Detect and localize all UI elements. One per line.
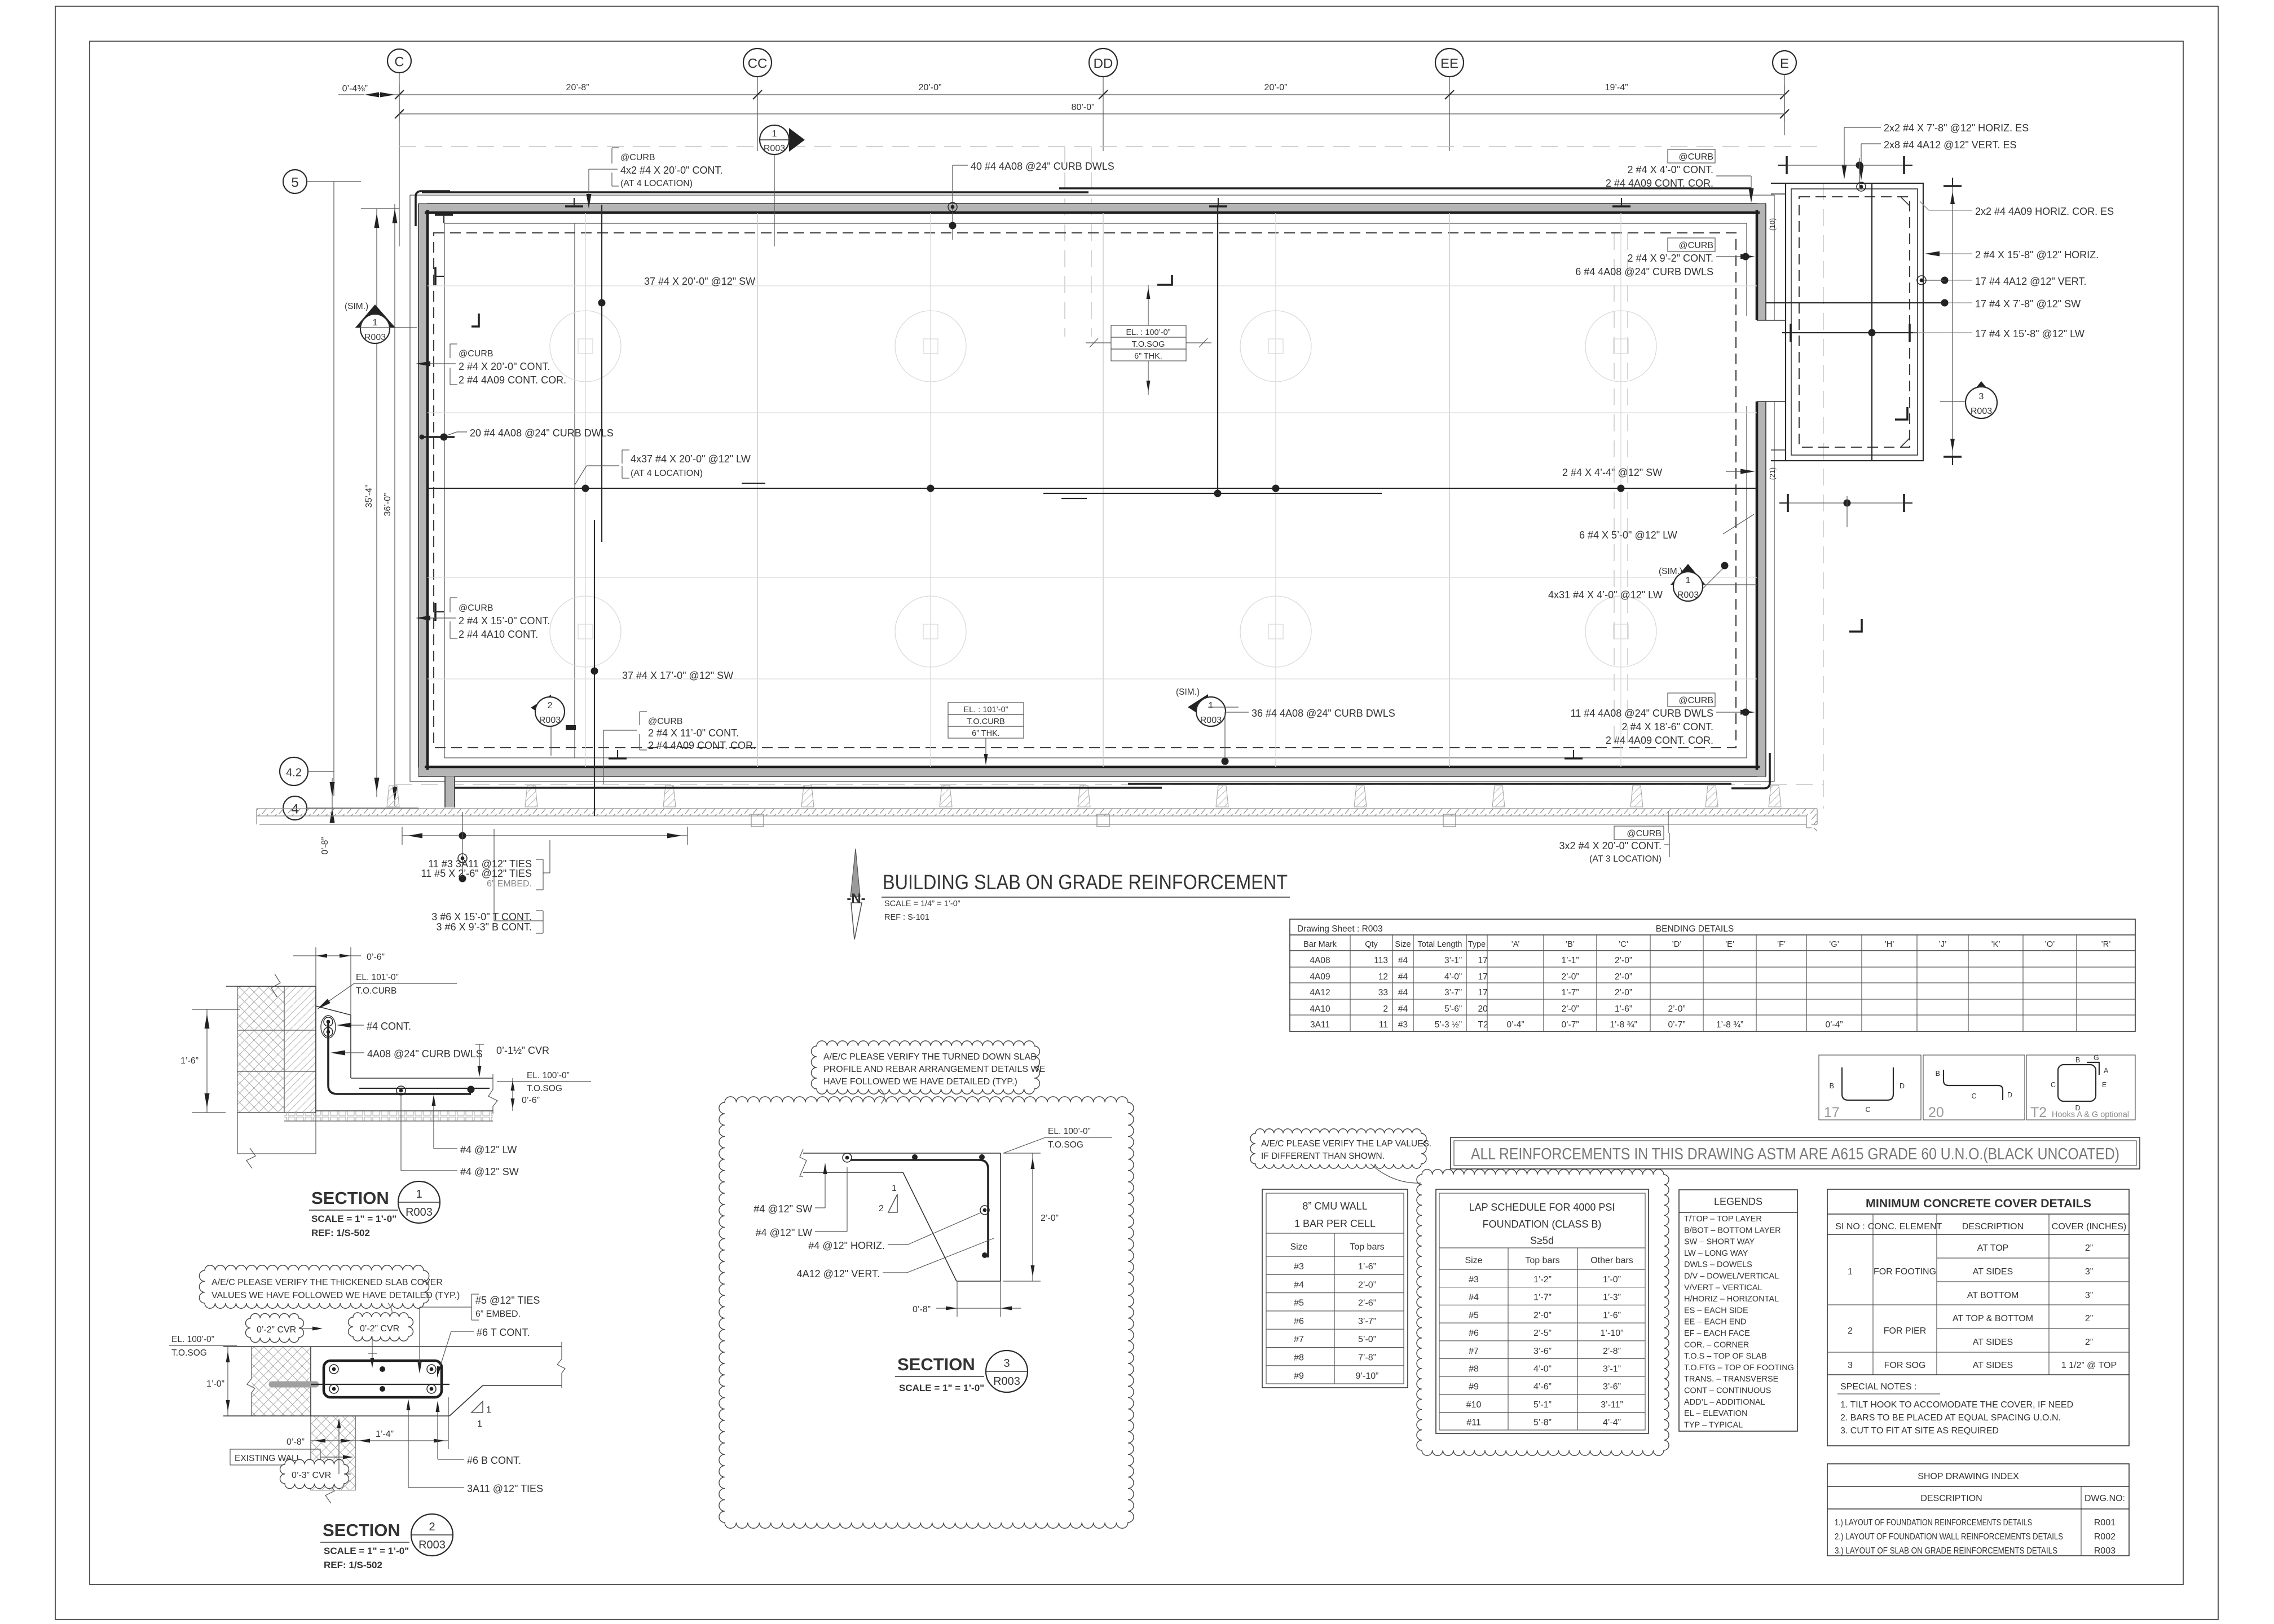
svg-text:#4: #4: [1469, 1293, 1479, 1303]
svg-text:SECTION: SECTION: [323, 1520, 400, 1540]
svg-text:0’-4”: 0’-4”: [1825, 1020, 1843, 1030]
svg-text:4x31 #4 X 4’-0" @12" LW: 4x31 #4 X 4’-0" @12" LW: [1548, 589, 1663, 601]
svg-text:#4 CONT.: #4 CONT.: [367, 1021, 411, 1032]
svg-text:1’-6”: 1’-6”: [1603, 1310, 1621, 1320]
svg-text:4’-4”: 4’-4”: [1603, 1418, 1621, 1428]
svg-text:3.) LAYOUT OF SLAB ON GRADE RE: 3.) LAYOUT OF SLAB ON GRADE REINFORCEMEN…: [1835, 1546, 2057, 1556]
svg-text:#10: #10: [1466, 1400, 1482, 1410]
svg-text:T2: T2: [1478, 1020, 1488, 1030]
svg-text:80’-0”: 80’-0”: [1072, 103, 1095, 112]
svg-text:LW – LONG WAY: LW – LONG WAY: [1684, 1249, 1748, 1258]
svg-text:6” EMBED.: 6” EMBED.: [475, 1309, 521, 1319]
svg-text:C: C: [394, 54, 404, 69]
svg-text:#7: #7: [1469, 1347, 1479, 1356]
svg-text:’D’: ’D’: [1672, 940, 1682, 949]
svg-text:0’-8”: 0’-8”: [320, 837, 330, 854]
svg-text:2’-6”: 2’-6”: [1358, 1299, 1376, 1308]
svg-text:1: 1: [1686, 576, 1691, 585]
svg-text:T.O.FTG – TOP OF FOOTING: T.O.FTG – TOP OF FOOTING: [1684, 1363, 1794, 1373]
svg-text:2: 2: [1848, 1326, 1853, 1336]
svg-text:0’-4⅜”: 0’-4⅜”: [342, 84, 368, 94]
svg-text:2 #4 4A09 CONT. COR.: 2 #4 4A09 CONT. COR.: [459, 374, 566, 386]
svg-text:FOR PIER: FOR PIER: [1884, 1326, 1927, 1336]
svg-text:3’-1”: 3’-1”: [1444, 956, 1462, 965]
svg-text:2’-5”: 2’-5”: [1533, 1329, 1552, 1338]
svg-text:’F’: ’F’: [1777, 940, 1786, 949]
svg-text:#4: #4: [1398, 972, 1408, 982]
svg-text:VALUES WE HAVE FOLLOWED WE HAV: VALUES WE HAVE FOLLOWED WE HAVE DETAILED…: [211, 1291, 460, 1300]
svg-text:2’-0”: 2’-0”: [1615, 956, 1632, 965]
svg-text:6” THK.: 6” THK.: [972, 729, 1000, 738]
svg-text:1: 1: [477, 1419, 482, 1429]
svg-text:2: 2: [429, 1521, 435, 1533]
svg-text:LAP SCHEDULE FOR 4000 PSI: LAP SCHEDULE FOR 4000 PSI: [1469, 1202, 1615, 1213]
svg-text:6” THK.: 6” THK.: [1134, 352, 1162, 361]
svg-text:6 #4 4A08 @24" CURB DWLS: 6 #4 4A08 @24" CURB DWLS: [1575, 266, 1713, 277]
svg-text:3: 3: [1848, 1361, 1853, 1370]
svg-text:EL. 101’-0”: EL. 101’-0”: [356, 973, 399, 982]
svg-text:20 #4 4A08 @24" CURB DWLS: 20 #4 4A08 @24" CURB DWLS: [470, 427, 614, 439]
svg-text:IF DIFFERENT THAN SHOWN.: IF DIFFERENT THAN SHOWN.: [1261, 1151, 1385, 1161]
svg-text:SCALE = 1" = 1’-0": SCALE = 1" = 1’-0": [324, 1546, 409, 1556]
svg-text:4A12 @12" VERT.: 4A12 @12" VERT.: [797, 1268, 880, 1279]
svg-text:2x2 #4 4A09 HORIZ. COR. ES: 2x2 #4 4A09 HORIZ. COR. ES: [1975, 206, 2114, 217]
svg-text:12: 12: [1378, 972, 1388, 982]
svg-text:’G’: ’G’: [1829, 940, 1839, 949]
svg-text:2 #4 X 4’-0" CONT.: 2 #4 X 4’-0" CONT.: [1628, 164, 1713, 175]
svg-text:@CURB: @CURB: [1678, 696, 1713, 705]
svg-text:ALL REINFORCEMENTS IN THIS DRA: ALL REINFORCEMENTS IN THIS DRAWING ASTM …: [1471, 1145, 2119, 1163]
svg-text:SI NO :: SI NO :: [1835, 1222, 1865, 1232]
svg-text:REF: 1/S-502: REF: 1/S-502: [324, 1560, 382, 1570]
svg-text:1.) LAYOUT OF FOUNDATION REINF: 1.) LAYOUT OF FOUNDATION REINFORCEMENTS …: [1835, 1518, 2032, 1528]
svg-text:EL – ELEVATION: EL – ELEVATION: [1684, 1409, 1748, 1418]
svg-text:0’-1½” CVR: 0’-1½” CVR: [496, 1045, 549, 1056]
svg-text:R002: R002: [2094, 1532, 2116, 1542]
svg-text:EE: EE: [1440, 56, 1458, 71]
svg-text:’B’: ’B’: [1566, 940, 1575, 949]
svg-text:1: 1: [772, 129, 777, 139]
svg-text:DESCRIPTION: DESCRIPTION: [1962, 1222, 2024, 1232]
svg-text:COR. – CORNER: COR. – CORNER: [1684, 1340, 1749, 1349]
svg-text:SECTION: SECTION: [311, 1188, 389, 1208]
svg-text:R003: R003: [2094, 1546, 2116, 1556]
svg-text:(AT 4 LOCATION): (AT 4 LOCATION): [620, 179, 693, 188]
svg-text:SCALE = 1" = 1’-0": SCALE = 1" = 1’-0": [899, 1383, 984, 1393]
svg-text:S≥5d: S≥5d: [1530, 1235, 1554, 1246]
svg-text:3: 3: [1979, 392, 1984, 401]
svg-text:DESCRIPTION: DESCRIPTION: [1920, 1494, 1982, 1503]
svg-text:#6: #6: [1294, 1317, 1304, 1326]
svg-text:A/E/C PLEASE VERIFY THE THICKE: A/E/C PLEASE VERIFY THE THICKENED SLAB C…: [211, 1278, 443, 1287]
svg-text:1’-7”: 1’-7”: [1561, 988, 1579, 998]
svg-text:1’-1”: 1’-1”: [1561, 956, 1579, 965]
svg-text:R003: R003: [364, 333, 386, 342]
svg-text:3’-6”: 3’-6”: [1603, 1382, 1621, 1392]
svg-text:T.O.SOG: T.O.SOG: [1132, 340, 1165, 349]
svg-text:2.) LAYOUT OF FOUNDATION WALL: 2.) LAYOUT OF FOUNDATION WALL REINFORCEM…: [1835, 1532, 2063, 1542]
svg-text:36’-0”: 36’-0”: [383, 493, 393, 517]
svg-text:DD: DD: [1094, 56, 1113, 71]
svg-text:Size: Size: [1290, 1242, 1307, 1252]
svg-text:17 #4 X 7’-8" @12" SW: 17 #4 X 7’-8" @12" SW: [1975, 298, 2081, 310]
svg-text:0’-6”: 0’-6”: [522, 1096, 540, 1105]
svg-text:EL. 100’-0”: EL. 100’-0”: [171, 1335, 214, 1344]
svg-text:SCALE = 1/4” = 1’-0”: SCALE = 1/4” = 1’-0”: [884, 899, 960, 908]
svg-text:1’-8 ¾”: 1’-8 ¾”: [1716, 1020, 1743, 1030]
svg-text:20’-0”: 20’-0”: [919, 83, 942, 92]
svg-text:B: B: [1830, 1082, 1834, 1090]
svg-text:2’-0”: 2’-0”: [1041, 1213, 1059, 1223]
svg-text:2. BARS TO BE PLACED AT EQUAL: 2. BARS TO BE PLACED AT EQUAL SPACING U.…: [1840, 1413, 2061, 1423]
svg-text:#4: #4: [1398, 988, 1408, 998]
svg-text:Type: Type: [1468, 940, 1486, 949]
svg-text:REF : S-101: REF : S-101: [884, 913, 929, 922]
svg-text:@CURB: @CURB: [1678, 152, 1713, 162]
svg-text:#4 @12" LW: #4 @12" LW: [756, 1227, 812, 1238]
svg-text:3’-7”: 3’-7”: [1358, 1317, 1376, 1326]
svg-text:19’-4”: 19’-4”: [1605, 83, 1628, 92]
svg-text:2’-0”: 2’-0”: [1615, 988, 1632, 998]
svg-text:2 #4 X 4’-4" @12" SW: 2 #4 X 4’-4" @12" SW: [1562, 467, 1662, 478]
svg-text:5: 5: [291, 175, 298, 190]
svg-text:2 #4 4A09 CONT. COR.: 2 #4 4A09 CONT. COR.: [1606, 178, 1713, 189]
svg-text:2’-0”: 2’-0”: [1615, 972, 1632, 982]
svg-text:T.O.SOG: T.O.SOG: [171, 1348, 207, 1358]
svg-text:5’-8”: 5’-8”: [1533, 1418, 1552, 1428]
svg-text:BUILDING SLAB ON GRADE REINFOR: BUILDING SLAB ON GRADE REINFORCEMENT: [883, 871, 1288, 894]
svg-text:Size: Size: [1465, 1256, 1482, 1265]
svg-text:2”: 2”: [2085, 1338, 2093, 1347]
svg-text:T.O.SOG: T.O.SOG: [1048, 1140, 1083, 1150]
svg-text:BENDING DETAILS: BENDING DETAILS: [1656, 924, 1734, 934]
svg-text:R003: R003: [764, 144, 785, 153]
svg-text:2”: 2”: [2085, 1243, 2093, 1253]
svg-text:’E’: ’E’: [1725, 940, 1734, 949]
svg-text:17: 17: [1824, 1105, 1840, 1120]
svg-text:4’-0”: 4’-0”: [1444, 972, 1462, 982]
svg-text:8” CMU WALL: 8” CMU WALL: [1302, 1201, 1367, 1212]
svg-text:4.2: 4.2: [286, 766, 302, 779]
svg-text:R003: R003: [418, 1539, 446, 1551]
svg-text:4A08: 4A08: [1310, 956, 1330, 965]
svg-text:#3: #3: [1469, 1275, 1479, 1285]
svg-text:V/VERT – VERTICAL: V/VERT – VERTICAL: [1684, 1283, 1762, 1292]
svg-text:3A11: 3A11: [1310, 1020, 1330, 1030]
svg-text:5’-3 ½”: 5’-3 ½”: [1435, 1020, 1462, 1030]
svg-text:1 BAR PER CELL: 1 BAR PER CELL: [1294, 1218, 1376, 1229]
svg-text:D/V – DOWEL/VERTICAL: D/V – DOWEL/VERTICAL: [1684, 1272, 1779, 1281]
svg-text:9’-10”: 9’-10”: [1356, 1371, 1379, 1381]
svg-text:EE – EACH END: EE – EACH END: [1684, 1318, 1746, 1327]
svg-text:Total Length: Total Length: [1417, 940, 1462, 949]
svg-text:A: A: [2104, 1067, 2109, 1075]
svg-text:4A12: 4A12: [1310, 988, 1330, 998]
svg-text:C: C: [2051, 1081, 2056, 1089]
svg-text:0’-6”: 0’-6”: [367, 952, 385, 962]
svg-text:#5 @12" TIES: #5 @12" TIES: [475, 1295, 540, 1306]
svg-text:1: 1: [373, 318, 378, 328]
svg-text:20’-8”: 20’-8”: [566, 83, 589, 92]
svg-text:#9: #9: [1469, 1382, 1479, 1392]
svg-text:2 #4 X 20’-0" CONT.: 2 #4 X 20’-0" CONT.: [459, 361, 550, 372]
svg-text:Qty: Qty: [1365, 940, 1378, 949]
svg-text:H/HORIZ – HORIZONTAL: H/HORIZ – HORIZONTAL: [1684, 1295, 1779, 1304]
svg-text:1’-0”: 1’-0”: [206, 1379, 224, 1389]
svg-text:T2: T2: [2030, 1105, 2047, 1120]
svg-text:#4 @12" SW: #4 @12" SW: [753, 1203, 812, 1215]
svg-text:T.O.SOG: T.O.SOG: [527, 1084, 562, 1093]
svg-text:CONC. ELEMENT: CONC. ELEMENT: [1868, 1222, 1942, 1232]
svg-text:0’-2” CVR: 0’-2” CVR: [360, 1324, 399, 1334]
svg-text:R003: R003: [1971, 407, 1992, 416]
svg-text:33: 33: [1378, 988, 1388, 998]
svg-text:Top bars: Top bars: [1525, 1256, 1559, 1265]
svg-text:B/BOT – BOTTOM LAYER: B/BOT – BOTTOM LAYER: [1684, 1226, 1781, 1235]
svg-text:35’-4”: 35’-4”: [364, 485, 374, 508]
svg-text:#9: #9: [1294, 1371, 1304, 1381]
svg-text:36 #4 4A08 @24" CURB DWLS: 36 #4 4A08 @24" CURB DWLS: [1251, 708, 1395, 719]
svg-text:0’-4”: 0’-4”: [1506, 1020, 1524, 1030]
svg-text:#6 B CONT.: #6 B CONT.: [467, 1455, 521, 1466]
svg-text:T.O.CURB: T.O.CURB: [356, 986, 396, 996]
svg-text:@CURB: @CURB: [620, 153, 655, 162]
svg-text:#5: #5: [1294, 1299, 1304, 1308]
svg-text:R003: R003: [993, 1375, 1020, 1388]
svg-text:FOR SOG: FOR SOG: [1884, 1361, 1926, 1370]
svg-text:11: 11: [1379, 1020, 1388, 1030]
svg-text:6” EMBED.: 6” EMBED.: [487, 879, 532, 889]
svg-text:2 #4 X 15’-8" @12" HORIZ.: 2 #4 X 15’-8" @12" HORIZ.: [1975, 249, 2099, 261]
svg-text:0’-2” CVR: 0’-2” CVR: [257, 1325, 296, 1335]
svg-text:Bar Mark: Bar Mark: [1303, 940, 1337, 949]
svg-text:AT SIDES: AT SIDES: [1973, 1361, 2013, 1370]
svg-text:0’-7”: 0’-7”: [1561, 1020, 1579, 1030]
svg-text:LEGENDS: LEGENDS: [1714, 1196, 1762, 1207]
svg-text:3’-1”: 3’-1”: [1603, 1365, 1621, 1374]
svg-text:#8: #8: [1469, 1365, 1479, 1374]
svg-text:11 #5 X 2’-6" @12" TIES: 11 #5 X 2’-6" @12" TIES: [421, 868, 532, 879]
svg-text:1: 1: [416, 1188, 422, 1201]
svg-text:17: 17: [1478, 956, 1488, 965]
svg-text:5’-0”: 5’-0”: [1358, 1335, 1376, 1344]
svg-text:2: 2: [1383, 1004, 1388, 1014]
svg-text:2’-0”: 2’-0”: [1533, 1310, 1552, 1320]
svg-text:3’-7”: 3’-7”: [1444, 988, 1462, 998]
svg-text:17 #4 X 15’-8" @12" LW: 17 #4 X 15’-8" @12" LW: [1975, 328, 2084, 339]
svg-text:#4 @12" HORIZ.: #4 @12" HORIZ.: [808, 1240, 885, 1251]
svg-text:1’-6”: 1’-6”: [1615, 1004, 1632, 1014]
svg-text:4A09: 4A09: [1310, 972, 1330, 982]
svg-text:3’-6”: 3’-6”: [1533, 1347, 1552, 1356]
svg-text:17: 17: [1478, 972, 1488, 982]
svg-text:REF: 1/S-502: REF: 1/S-502: [311, 1228, 370, 1238]
svg-text:FOR FOOTING: FOR FOOTING: [1874, 1267, 1936, 1277]
svg-text:1’-6”: 1’-6”: [180, 1056, 199, 1066]
svg-text:1’-4”: 1’-4”: [376, 1429, 394, 1439]
svg-text:1: 1: [1848, 1267, 1853, 1277]
svg-text:HAVE FOLLOWED WE HAVE DETAILED: HAVE FOLLOWED WE HAVE DETAILED (TYP.): [823, 1077, 1017, 1087]
svg-text:2 #4 X 18’-6" CONT.: 2 #4 X 18’-6" CONT.: [1622, 721, 1713, 732]
svg-text:SCALE = 1" = 1’-0": SCALE = 1" = 1’-0": [311, 1213, 396, 1224]
svg-text:4’-6”: 4’-6”: [1533, 1382, 1552, 1392]
svg-text:R001: R001: [2094, 1518, 2116, 1528]
svg-text:Size: Size: [1395, 940, 1411, 949]
svg-text:1’-0”: 1’-0”: [1603, 1275, 1621, 1285]
svg-text:4x37 #4 X 20’-0" @12" LW: 4x37 #4 X 20’-0" @12" LW: [631, 453, 751, 465]
svg-text:1 1/2” @ TOP: 1 1/2” @ TOP: [2061, 1361, 2117, 1370]
svg-text:4x2 #4 X 20’-0" CONT.: 4x2 #4 X 20’-0" CONT.: [620, 165, 722, 176]
svg-text:(SIM.): (SIM.): [345, 302, 368, 311]
svg-text:@CURB: @CURB: [1678, 241, 1713, 250]
svg-text:2 #4 4A10 CONT.: 2 #4 4A10 CONT.: [459, 629, 538, 640]
svg-text:2x2 #4 X 7’-8" @12" HORIZ. ES: 2x2 #4 X 7’-8" @12" HORIZ. ES: [1884, 122, 2029, 134]
svg-text:Other bars: Other bars: [1590, 1256, 1633, 1265]
svg-text:TYP – TYPICAL: TYP – TYPICAL: [1684, 1420, 1743, 1429]
svg-text:R003: R003: [1200, 716, 1222, 725]
svg-text:’H’: ’H’: [1885, 940, 1894, 949]
svg-text:TRANS. – TRANSVERSE: TRANS. – TRANSVERSE: [1684, 1375, 1779, 1384]
svg-text:113: 113: [1374, 956, 1388, 965]
svg-text:1: 1: [486, 1405, 491, 1415]
svg-text:MINIMUM CONCRETE COVER DETAILS: MINIMUM CONCRETE COVER DETAILS: [1866, 1197, 2091, 1210]
svg-text:AT SIDES: AT SIDES: [1973, 1338, 2013, 1347]
svg-text:1’-7”: 1’-7”: [1533, 1293, 1552, 1303]
svg-text:A/E/C PLEASE VERIFY THE LAP VA: A/E/C PLEASE VERIFY THE LAP VALUES.: [1261, 1139, 1431, 1149]
svg-text:#4: #4: [1398, 956, 1408, 965]
svg-text:0’-7”: 0’-7”: [1668, 1020, 1685, 1030]
svg-text:2 #4 4A09 CONT. COR.: 2 #4 4A09 CONT. COR.: [1606, 735, 1713, 746]
svg-text:0’-8”: 0’-8”: [287, 1437, 305, 1447]
svg-text:B: B: [1936, 1070, 1940, 1078]
svg-text:2 #4 4A09 CONT. COR.: 2 #4 4A09 CONT. COR.: [648, 740, 756, 751]
svg-text:3”: 3”: [2085, 1267, 2093, 1277]
svg-text:A/E/C PLEASE VERIFY THE TURNED: A/E/C PLEASE VERIFY THE TURNED DOWN SLAB: [823, 1052, 1037, 1062]
svg-text:AT TOP: AT TOP: [1977, 1243, 2009, 1253]
svg-text:1’-8 ¾”: 1’-8 ¾”: [1610, 1020, 1637, 1030]
svg-text:1’-2”: 1’-2”: [1533, 1275, 1552, 1285]
svg-text:#4: #4: [1398, 1004, 1408, 1014]
svg-text:CC: CC: [748, 56, 768, 71]
svg-text:1’-3”: 1’-3”: [1603, 1293, 1621, 1303]
svg-text:G: G: [2094, 1054, 2099, 1062]
svg-text:AT BOTTOM: AT BOTTOM: [1967, 1291, 2019, 1300]
svg-text:11 #4 4A08 @24" CURB DWLS: 11 #4 4A08 @24" CURB DWLS: [1571, 708, 1713, 719]
svg-text:4A10: 4A10: [1310, 1004, 1330, 1014]
svg-text:’K’: ’K’: [1991, 940, 2000, 949]
svg-text:C: C: [1865, 1106, 1870, 1114]
svg-text:EL. 100’-0”: EL. 100’-0”: [1048, 1127, 1091, 1136]
svg-text:40 #4 4A08 @24" CURB DWLS: 40 #4 4A08 @24" CURB DWLS: [971, 161, 1114, 172]
svg-text:@CURB: @CURB: [1627, 829, 1662, 839]
svg-text:5’-6”: 5’-6”: [1444, 1004, 1462, 1014]
svg-text:’C’: ’C’: [1619, 940, 1628, 949]
svg-text:1. TILT HOOK TO ACCOMODATE THE: 1. TILT HOOK TO ACCOMODATE THE COVER, IF…: [1840, 1400, 2073, 1410]
svg-text:D: D: [2007, 1091, 2012, 1099]
svg-text:#5: #5: [1469, 1310, 1479, 1320]
svg-text:(10): (10): [1769, 218, 1777, 231]
svg-text:20’-0”: 20’-0”: [1264, 83, 1288, 92]
svg-text:Drawing Sheet : R003: Drawing Sheet : R003: [1297, 924, 1383, 934]
svg-text:#4 @12" LW: #4 @12" LW: [460, 1144, 517, 1155]
svg-text:2 #4 X 9’-2" CONT.: 2 #4 X 9’-2" CONT.: [1628, 253, 1713, 264]
svg-text:1’-6”: 1’-6”: [1358, 1262, 1376, 1272]
svg-text:3A11 @12" TIES: 3A11 @12" TIES: [467, 1483, 543, 1494]
svg-text:4A08 @24" CURB DWLS: 4A08 @24" CURB DWLS: [367, 1048, 483, 1060]
svg-text:AT SIDES: AT SIDES: [1973, 1267, 2013, 1277]
svg-text:2’-0”: 2’-0”: [1561, 972, 1579, 982]
svg-text:-N-: -N-: [847, 891, 865, 906]
svg-text:17: 17: [1478, 988, 1488, 998]
svg-text:COVER (INCHES): COVER (INCHES): [2052, 1222, 2126, 1232]
svg-text:#7: #7: [1294, 1335, 1304, 1344]
svg-text:E: E: [1780, 56, 1789, 71]
svg-text:37 #4 X 17’-0" @12" SW: 37 #4 X 17’-0" @12" SW: [622, 670, 733, 681]
svg-text:2: 2: [879, 1204, 884, 1213]
svg-text:3x2 #4 X 20’-0" CONT.: 3x2 #4 X 20’-0" CONT.: [1559, 840, 1662, 851]
svg-text:#6 T CONT.: #6 T CONT.: [477, 1327, 530, 1338]
svg-text:AT TOP & BOTTOM: AT TOP & BOTTOM: [1953, 1314, 2033, 1323]
svg-text:7’-8”: 7’-8”: [1358, 1353, 1376, 1363]
svg-text:1’-10”: 1’-10”: [1601, 1329, 1624, 1338]
svg-text:SHOP DRAWING INDEX: SHOP DRAWING INDEX: [1918, 1472, 2019, 1481]
svg-text:R003: R003: [1677, 590, 1699, 600]
svg-text:3: 3: [1003, 1357, 1010, 1370]
svg-text:3 #6 X 9’-3" B CONT.: 3 #6 X 9’-3" B CONT.: [437, 921, 532, 933]
svg-text:2’-0”: 2’-0”: [1561, 1004, 1579, 1014]
svg-text:0’-3” CVR: 0’-3” CVR: [292, 1471, 331, 1480]
svg-text:1: 1: [892, 1184, 897, 1193]
svg-text:D: D: [1900, 1082, 1905, 1090]
svg-text:DWLS – DOWELS: DWLS – DOWELS: [1684, 1260, 1752, 1269]
svg-text:T.O.CURB: T.O.CURB: [967, 717, 1005, 726]
svg-text:2 #4 X 11’-0" CONT.: 2 #4 X 11’-0" CONT.: [648, 727, 739, 739]
svg-text:#4: #4: [1294, 1280, 1304, 1290]
svg-text:DWG.NO:: DWG.NO:: [2084, 1494, 2125, 1503]
svg-text:T/TOP – TOP LAYER: T/TOP – TOP LAYER: [1684, 1215, 1762, 1224]
svg-text:0’-8”: 0’-8”: [913, 1305, 931, 1314]
svg-text:(SIM.): (SIM.): [1176, 687, 1200, 697]
svg-text:2’-8”: 2’-8”: [1603, 1347, 1621, 1356]
svg-text:37 #4 X 20’-0" @12" SW: 37 #4 X 20’-0" @12" SW: [644, 276, 755, 287]
svg-text:5’-1”: 5’-1”: [1533, 1400, 1552, 1410]
svg-text:T.O.S – TOP OF SLAB: T.O.S – TOP OF SLAB: [1684, 1352, 1767, 1361]
svg-text:CONT – CONTINUOUS: CONT – CONTINUOUS: [1684, 1387, 1771, 1396]
svg-text:#4 @12" SW: #4 @12" SW: [460, 1166, 519, 1177]
svg-text:E: E: [2102, 1081, 2106, 1089]
svg-text:SW – SHORT WAY: SW – SHORT WAY: [1684, 1238, 1755, 1247]
svg-text:20: 20: [1478, 1004, 1488, 1014]
svg-text:ES – EACH SIDE: ES – EACH SIDE: [1684, 1306, 1748, 1315]
svg-text:#3: #3: [1294, 1262, 1304, 1272]
svg-text:3”: 3”: [2085, 1291, 2093, 1300]
svg-text:EF – EACH FACE: EF – EACH FACE: [1684, 1329, 1750, 1338]
svg-text:Hooks A & G optional: Hooks A & G optional: [2052, 1110, 2129, 1119]
svg-text:#11: #11: [1466, 1418, 1481, 1428]
svg-text:ADD’L – ADDITIONAL: ADD’L – ADDITIONAL: [1684, 1398, 1765, 1407]
svg-text:R003: R003: [406, 1206, 433, 1219]
svg-text:6 #4 X 5’-0" @12" LW: 6 #4 X 5’-0" @12" LW: [1579, 529, 1677, 541]
svg-text:3. CUT TO FIT AT SITE AS REQUI: 3. CUT TO FIT AT SITE AS REQUIRED: [1840, 1426, 1999, 1436]
svg-text:2 #4 X 15’-0" CONT.: 2 #4 X 15’-0" CONT.: [459, 615, 550, 626]
svg-text:C: C: [1971, 1092, 1976, 1100]
svg-text:PROFILE AND REBAR ARRANGEMENT: PROFILE AND REBAR ARRANGEMENT DETAILS WE: [823, 1065, 1045, 1074]
svg-text:’O’: ’O’: [2045, 940, 2055, 949]
svg-text:B: B: [2075, 1056, 2080, 1064]
svg-text:#8: #8: [1294, 1353, 1304, 1363]
svg-text:’A’: ’A’: [1511, 940, 1519, 949]
svg-text:2: 2: [548, 701, 553, 710]
